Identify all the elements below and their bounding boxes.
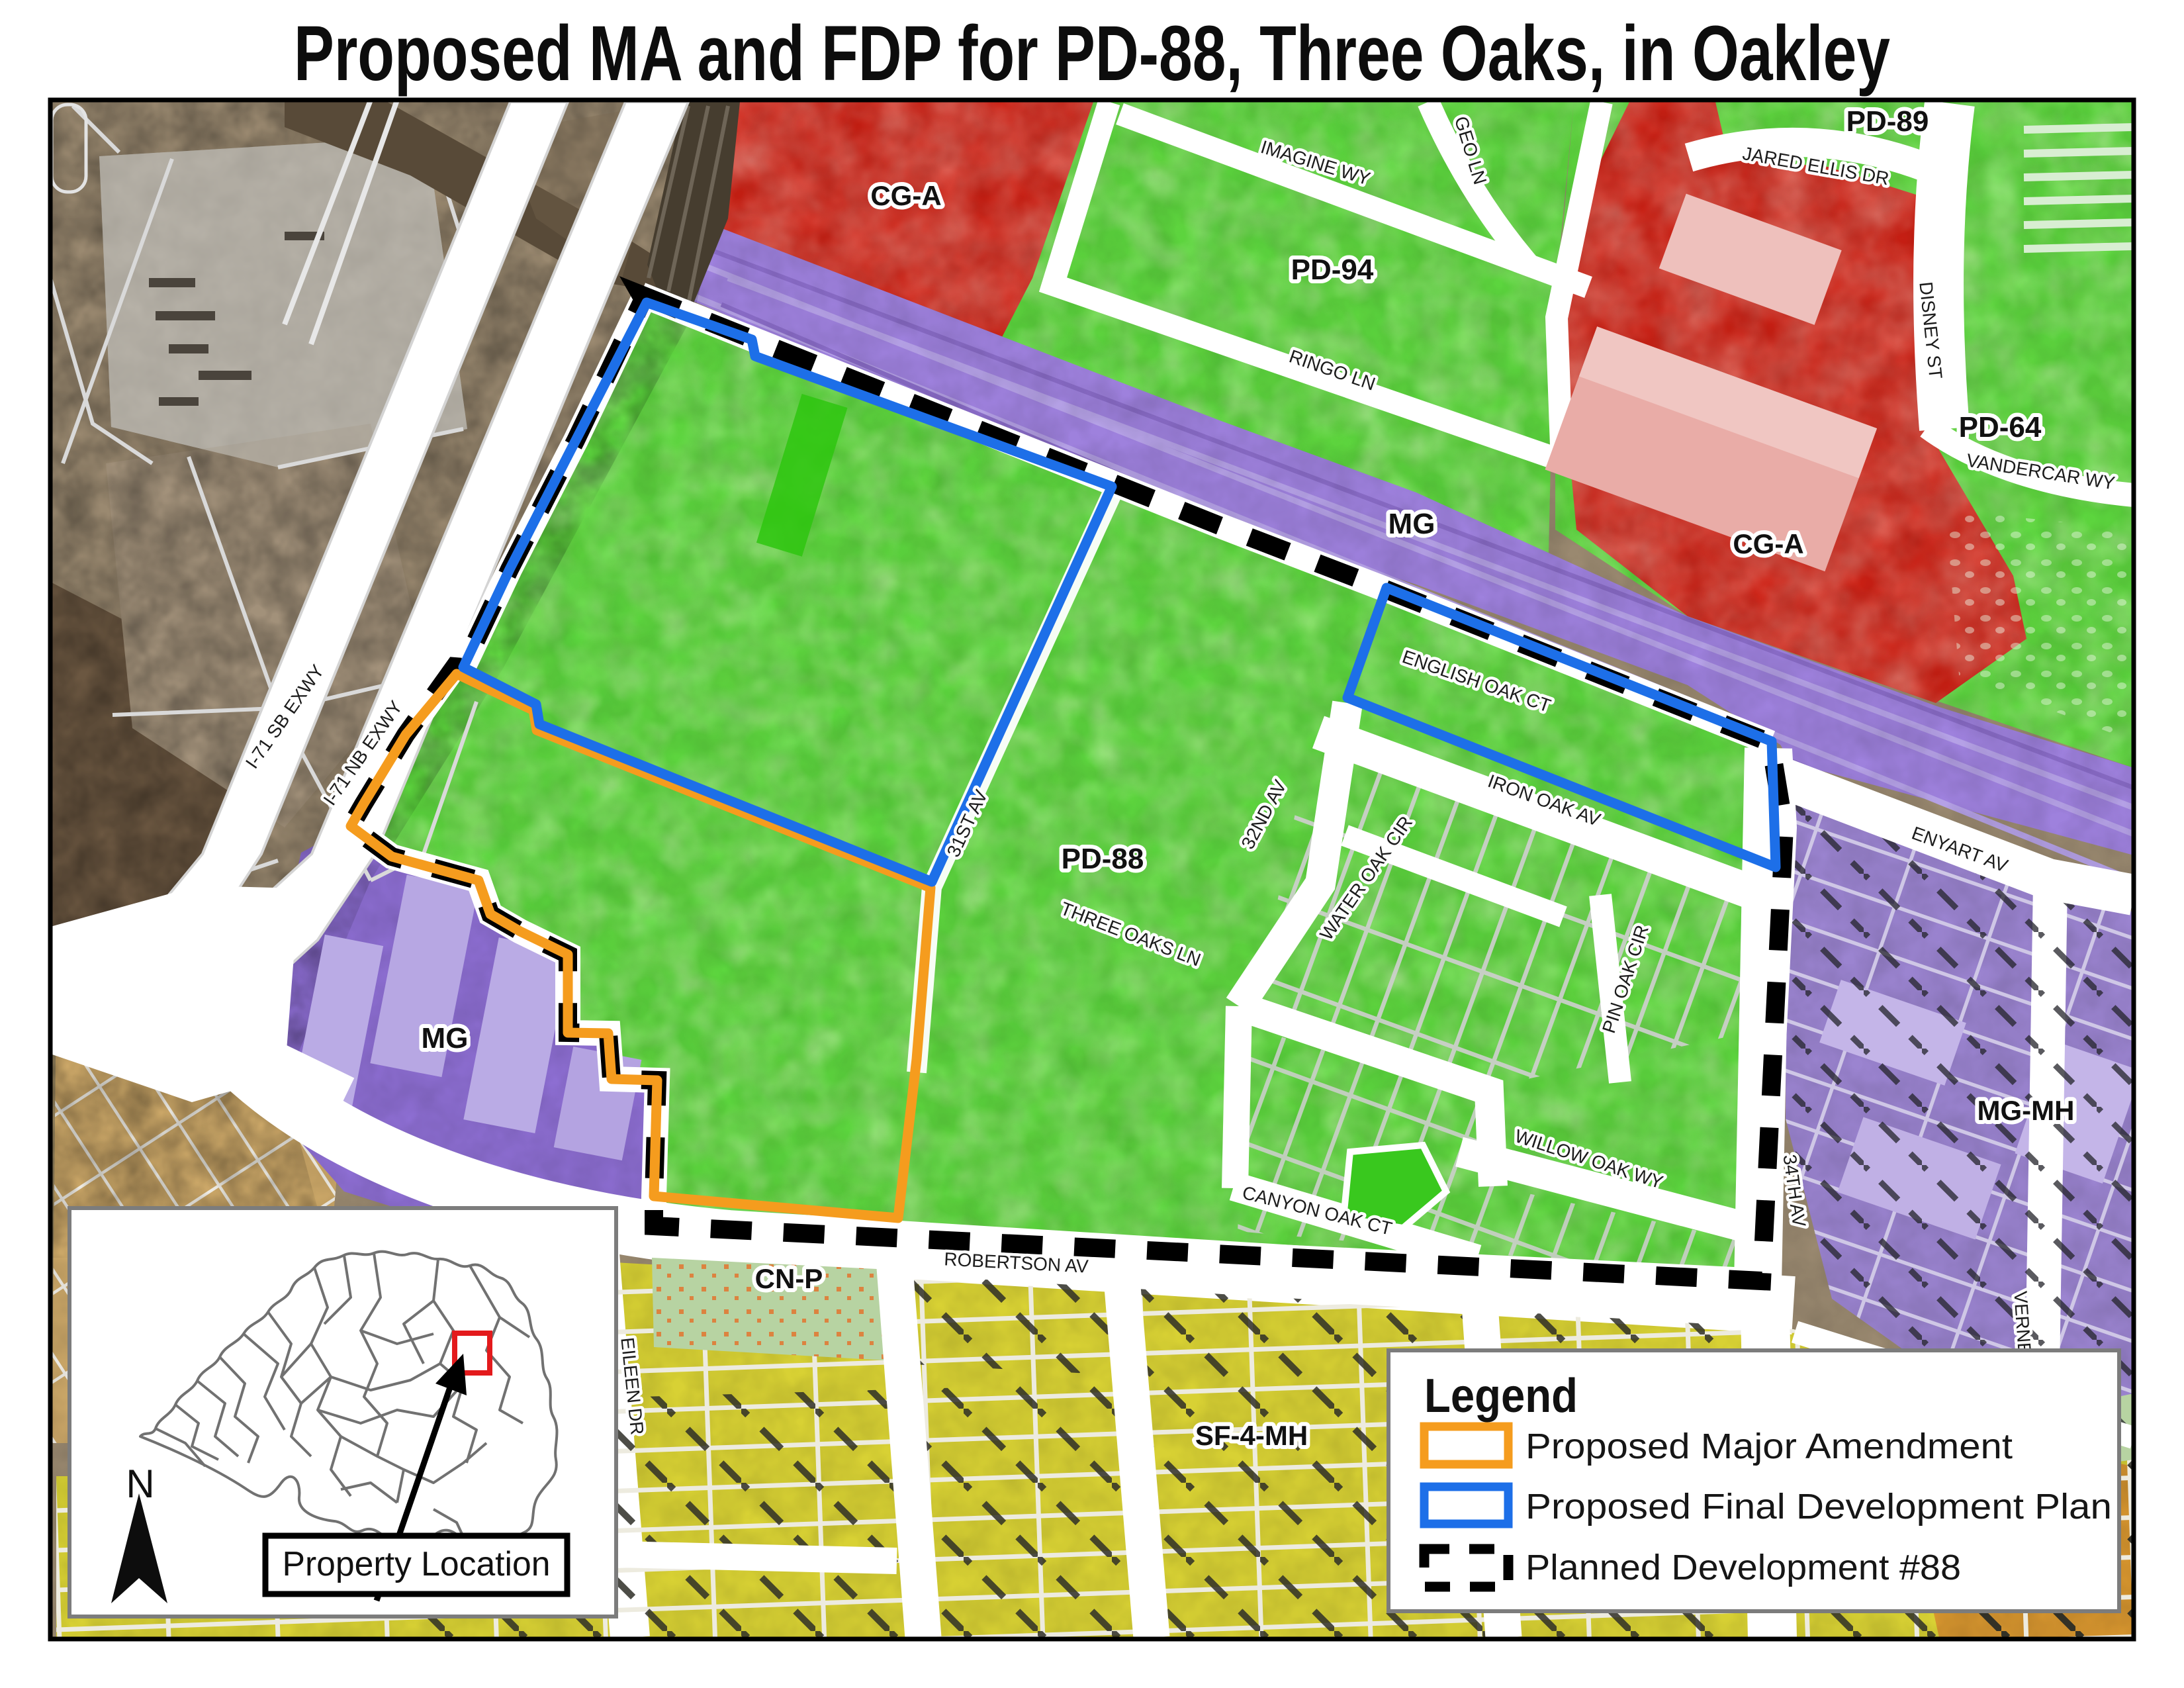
svg-text:PD-94: PD-94	[1291, 254, 1374, 286]
svg-text:CN-P: CN-P	[755, 1263, 823, 1294]
svg-text:PD-88: PD-88	[1062, 843, 1144, 875]
svg-text:MG-MH: MG-MH	[1978, 1095, 2075, 1126]
svg-text:Proposed Final Development Pla: Proposed Final Development Plan	[1525, 1487, 2112, 1526]
svg-text:Legend: Legend	[1424, 1370, 1578, 1423]
svg-text:Property Location: Property Location	[283, 1545, 551, 1583]
svg-text:MG: MG	[422, 1022, 469, 1055]
svg-text:CG-A: CG-A	[1733, 528, 1803, 559]
svg-text:PD-64: PD-64	[1959, 411, 2042, 444]
svg-text:Planned Development #88: Planned Development #88	[1525, 1548, 1961, 1587]
svg-text:PD-89: PD-89	[1846, 105, 1929, 138]
svg-text:SF-4-MH: SF-4-MH	[1195, 1420, 1308, 1451]
svg-text:Proposed Major Amendment: Proposed Major Amendment	[1525, 1427, 2013, 1466]
svg-text:CG-A: CG-A	[870, 180, 941, 211]
svg-text:MG: MG	[1388, 508, 1435, 540]
svg-text:Proposed MA and FDP for PD-88,: Proposed MA and FDP for PD-88, Three Oak…	[294, 10, 1890, 97]
